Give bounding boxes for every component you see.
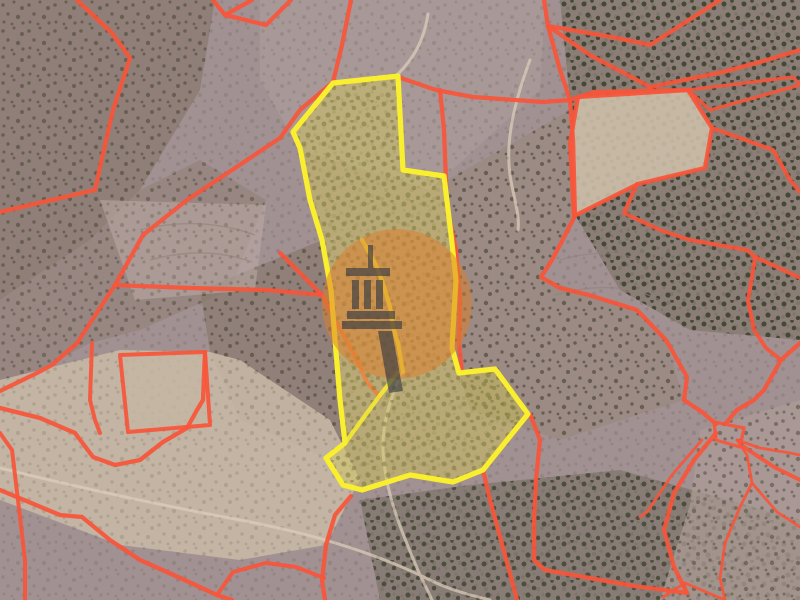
parcel-boundary-polygon bbox=[120, 352, 210, 432]
logo-part bbox=[342, 321, 402, 329]
logo-part bbox=[346, 268, 390, 276]
watermark-circle bbox=[322, 229, 472, 379]
logo-part bbox=[352, 280, 359, 309]
map-viewport[interactable] bbox=[0, 0, 800, 600]
aerial-map[interactable] bbox=[0, 0, 800, 600]
logo-part bbox=[376, 280, 383, 309]
logo-part bbox=[368, 245, 373, 270]
logo-part bbox=[347, 311, 395, 319]
logo-part bbox=[364, 280, 371, 309]
